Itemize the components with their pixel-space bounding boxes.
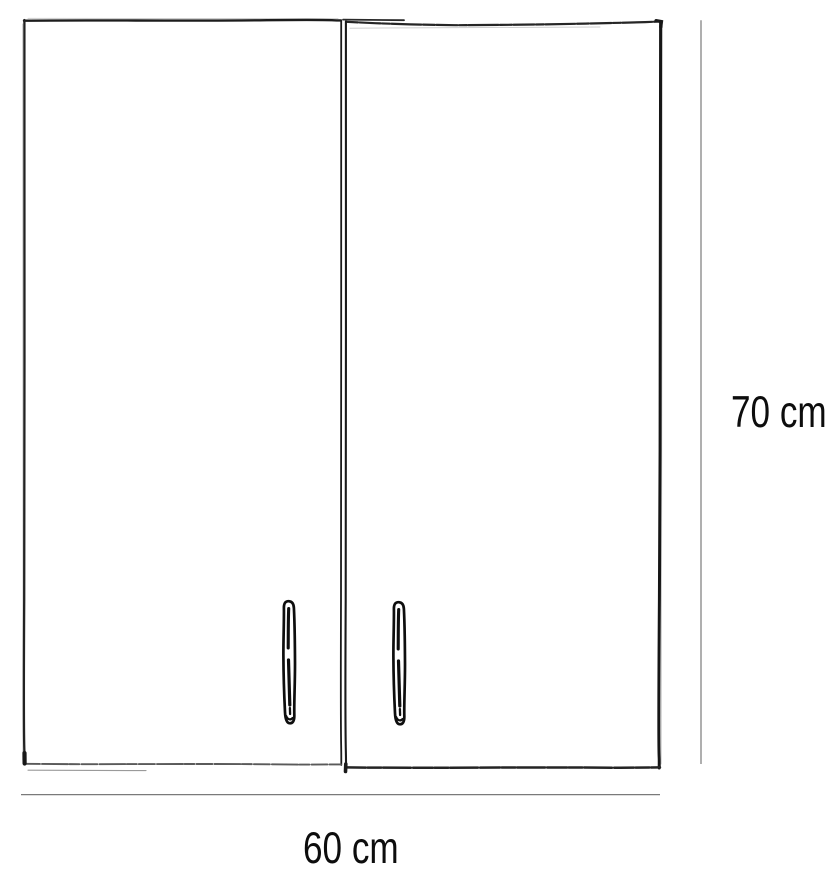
svg-text:70 cm: 70 cm: [731, 388, 827, 437]
svg-text:60 cm: 60 cm: [303, 824, 399, 873]
